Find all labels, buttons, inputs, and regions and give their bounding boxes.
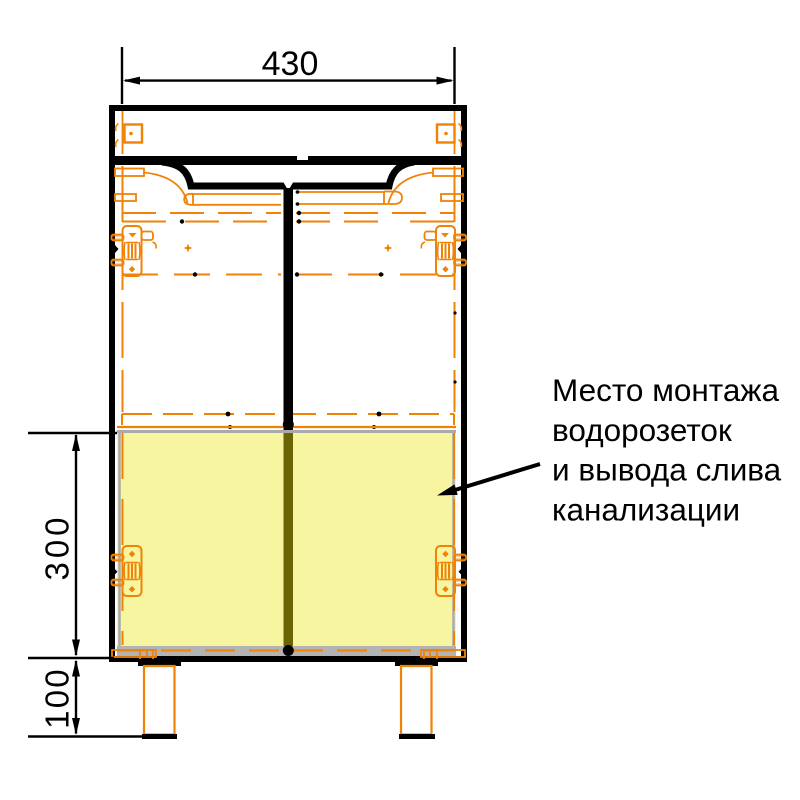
svg-text:канализации: канализации xyxy=(552,491,740,527)
svg-text:водорозеток: водорозеток xyxy=(552,412,732,448)
svg-text:Место монтажа: Место монтажа xyxy=(552,372,779,408)
svg-text:300: 300 xyxy=(39,513,76,580)
svg-text:100: 100 xyxy=(39,667,76,729)
svg-text:и вывода слива: и вывода слива xyxy=(552,452,782,488)
svg-text:430: 430 xyxy=(262,45,319,83)
